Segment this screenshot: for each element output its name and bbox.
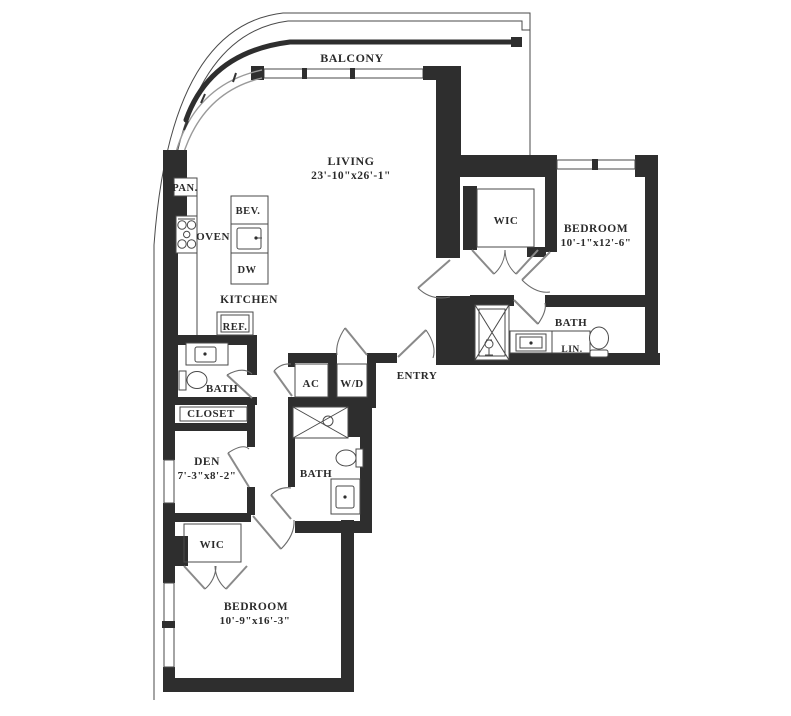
bath-right-door — [514, 300, 545, 324]
bedroom-right-dims: 10'-1"x12'-6" — [561, 237, 632, 249]
wic-bottom-label: WIC — [200, 539, 225, 551]
living-hall-door — [418, 260, 450, 298]
shower-icon — [475, 305, 509, 360]
living-glass-wall — [176, 66, 437, 155]
bedroom-bottom-door — [253, 516, 294, 549]
bedroom-bottom-dims: 10'-9"x16'-3" — [220, 615, 291, 627]
oven-label: OVEN — [196, 231, 230, 243]
linen-label: LIN. — [561, 345, 582, 355]
bedroom-right-door — [522, 252, 550, 292]
refrigerator-label: REF. — [223, 322, 248, 333]
kitchen-sink-icon — [237, 228, 262, 249]
washer-dryer-door — [337, 328, 367, 355]
kitchen-label: KITCHEN — [220, 294, 278, 306]
ac-door — [274, 364, 292, 396]
dishwasher-label: DW — [237, 265, 256, 276]
beverage-label: BEV. — [236, 206, 261, 217]
den-label: DEN — [194, 456, 220, 468]
vanity-sink-icon — [186, 343, 228, 365]
cooktop-icon — [176, 216, 197, 253]
bathtub-icon — [293, 407, 348, 438]
entry-door — [398, 330, 434, 358]
washer-dryer-label: W/D — [340, 378, 364, 390]
wic-right-label: WIC — [494, 215, 519, 227]
bedroom-bottom-label: BEDROOM — [224, 601, 288, 613]
living-dims: 23'-10"x26'-1" — [311, 170, 391, 182]
bath-center-label: BATH — [300, 468, 332, 480]
balcony-label: BALCONY — [320, 51, 384, 65]
toilet-icon — [590, 327, 609, 357]
bath-right-label: BATH — [555, 317, 587, 329]
den-window — [164, 460, 174, 503]
closet-label: CLOSET — [187, 408, 235, 420]
den-dims: 7'-3"x8'-2" — [178, 470, 237, 482]
toilet-icon — [179, 371, 207, 390]
bedroom-right-label: BEDROOM — [564, 223, 628, 235]
entry-label: ENTRY — [397, 370, 438, 382]
bath-center-door — [271, 488, 291, 519]
bath-right-fixtures — [475, 305, 609, 360]
pantry-label: PAN. — [172, 183, 197, 194]
bath-left-label: BATH — [206, 383, 238, 395]
ac-label: AC — [303, 378, 320, 390]
floor-plan: BALCONY LIVING 23'-10"x26'-1" PAN. OVEN … — [0, 0, 791, 716]
vanity-sink-icon — [331, 479, 360, 514]
wic-bottom-doors — [184, 566, 247, 589]
floor-plan-page: BALCONY LIVING 23'-10"x26'-1" PAN. OVEN … — [0, 0, 791, 716]
toilet-icon — [336, 449, 363, 467]
living-label: LIVING — [327, 154, 374, 168]
kitchen-fixtures — [174, 178, 268, 335]
